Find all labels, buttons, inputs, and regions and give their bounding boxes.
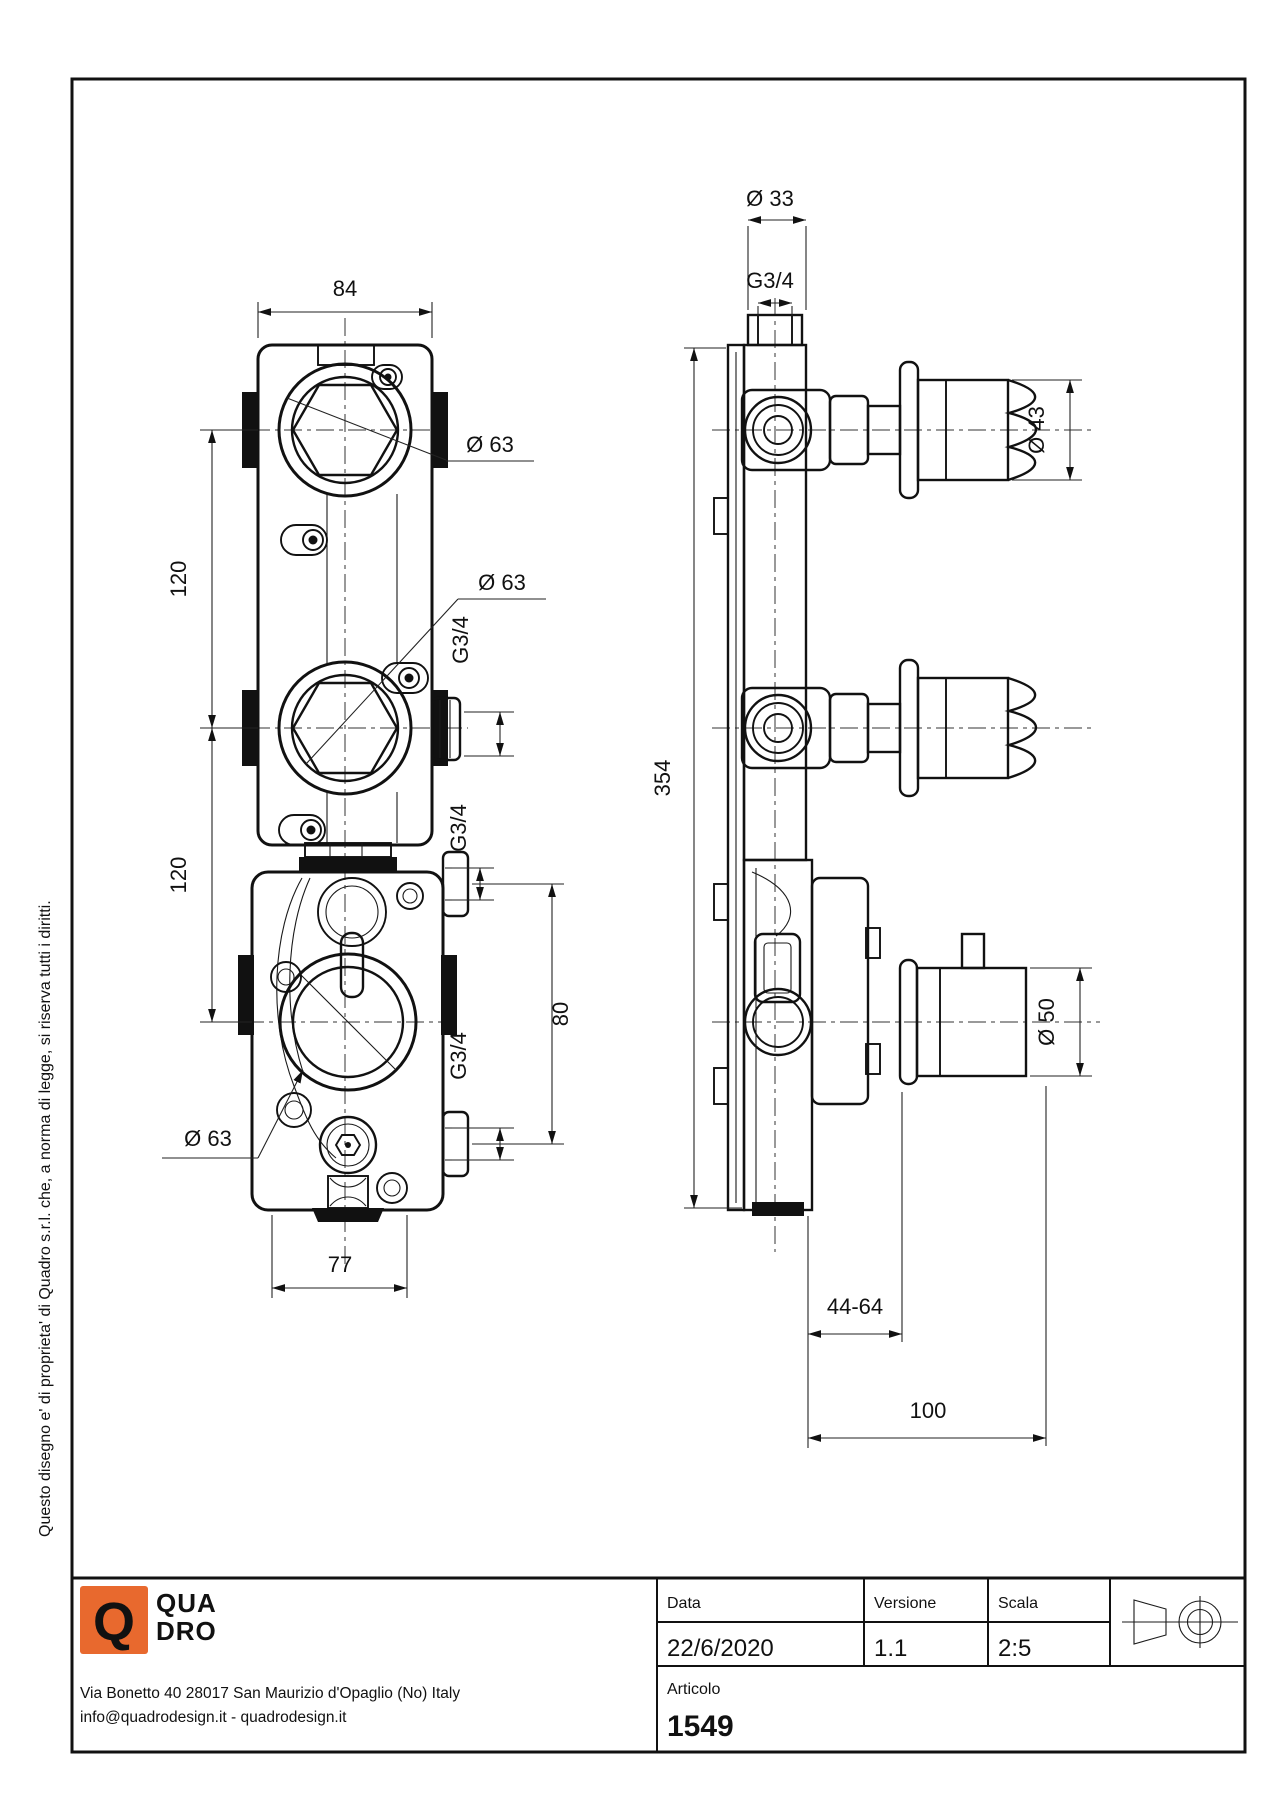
dim-pitch-lower: 120 xyxy=(166,857,191,894)
company-contacts: info@quadrodesign.it - quadrodesign.it xyxy=(80,1709,347,1726)
logo-letter: Q xyxy=(93,1592,135,1652)
brand-line2: DRO xyxy=(156,1616,217,1646)
article-value: 1549 xyxy=(667,1710,734,1743)
dim-width-bottom: 77 xyxy=(328,1252,352,1277)
dim-thread-stub: G3/4 xyxy=(746,268,794,293)
sheet-border xyxy=(72,79,1245,1752)
dim-width-top: 84 xyxy=(333,276,357,301)
hex-screw-boss xyxy=(320,1117,376,1173)
scale-value: 2:5 xyxy=(998,1635,1031,1662)
front-dimensions: 84 120 120 77 Ø 63 Ø 63 Ø 63 G3/4 xyxy=(162,276,573,1298)
side-housing-lower xyxy=(744,860,812,1210)
dim-dia-knob-low: Ø 50 xyxy=(1034,998,1059,1046)
side-view: Ø 33 G3/4 354 Ø 43 Ø 50 44-64 xyxy=(650,186,1100,1448)
version-label: Versione xyxy=(874,1595,936,1612)
drawing-sheet: Questo disegno e' di proprieta' di Quadr… xyxy=(0,0,1273,1800)
dim-pitch-upper: 120 xyxy=(166,561,191,598)
front-view: 84 120 120 77 Ø 63 Ø 63 Ø 63 G3/4 xyxy=(162,276,573,1298)
company-block: Q QUA DRO Via Bonetto 40 28017 San Mauri… xyxy=(80,1586,460,1726)
date-label: Data xyxy=(667,1595,701,1612)
dim-port-lower: G3/4 xyxy=(446,1032,471,1080)
dim-dia-stub: Ø 33 xyxy=(746,186,794,211)
dim-port-upper: G3/4 xyxy=(446,804,471,852)
mounting-tabs xyxy=(238,392,457,1035)
copyright-note: Questo disegno e' di proprieta' di Quadr… xyxy=(37,900,54,1537)
date-value: 22/6/2020 xyxy=(667,1635,774,1662)
side-dimensions: Ø 33 G3/4 354 Ø 43 Ø 50 44-64 xyxy=(650,186,1092,1448)
volume-knob xyxy=(900,934,1026,1084)
dim-overall-height: 354 xyxy=(650,760,675,797)
dim-dia-knob: Ø 43 xyxy=(1024,406,1049,454)
union-nut xyxy=(299,843,397,872)
technical-drawing-svg: Questo disegno e' di proprieta' di Quadr… xyxy=(0,0,1273,1800)
dim-depth-range: 44-64 xyxy=(827,1294,883,1319)
projection-symbol-icon xyxy=(1122,1596,1238,1648)
scale-label: Scala xyxy=(998,1595,1038,1612)
dim-port-span: 80 xyxy=(548,1002,573,1026)
dim-dia-bottom: Ø 63 xyxy=(184,1126,232,1151)
article-label: Articolo xyxy=(667,1681,720,1698)
dim-dia-top: Ø 63 xyxy=(466,432,514,457)
brand-line1: QUA xyxy=(156,1588,217,1618)
dim-port-mid: G3/4 xyxy=(448,616,473,664)
company-address: Via Bonetto 40 28017 San Maurizio d'Opag… xyxy=(80,1685,460,1702)
dim-depth-total: 100 xyxy=(910,1398,947,1423)
bottom-connector xyxy=(312,1176,384,1222)
cartridge xyxy=(318,878,386,997)
version-value: 1.1 xyxy=(874,1635,907,1662)
dim-dia-mid: Ø 63 xyxy=(478,570,526,595)
